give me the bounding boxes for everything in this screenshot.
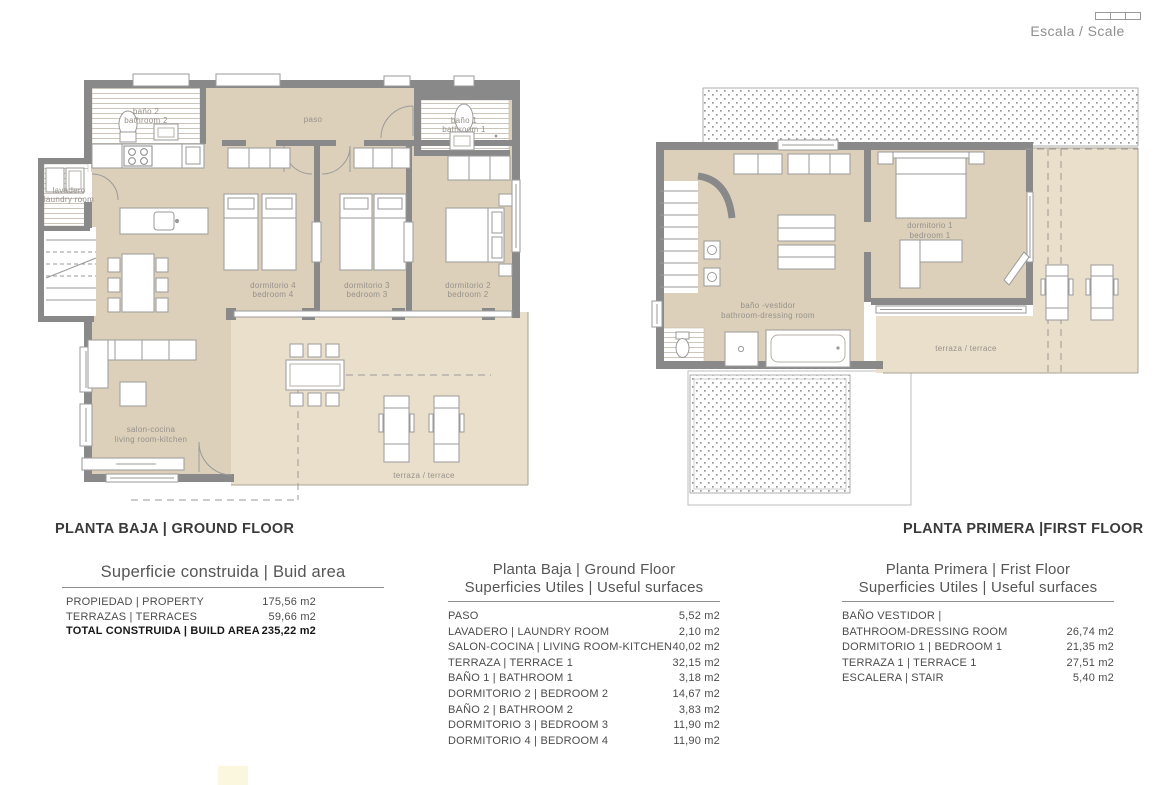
- drawing-sheet: Escala / Scale: [0, 0, 1170, 785]
- table-title: Superficie construida | Buid area: [62, 561, 384, 583]
- row-label: ESCALERA | STAIR: [842, 671, 944, 687]
- shower: [725, 332, 758, 366]
- row-label: BAÑO 1 | BATHROOM 1: [448, 671, 573, 687]
- table-row: TERRAZA | TERRACE 1 32,15 m2: [448, 656, 720, 672]
- first-floor-plan: baño -vestidor bathroom-dressing room do…: [646, 76, 1146, 521]
- row-label: TOTAL CONSTRUIDA | BUILD AREA: [66, 624, 260, 639]
- room-label-dorm1: bedroom 1: [910, 231, 951, 240]
- table-row: TERRAZAS | TERRACES 59,66 m2: [66, 610, 316, 625]
- row-value: 26,74 m2: [1067, 625, 1114, 641]
- room-label-bano2: bathroom 2: [124, 116, 168, 125]
- kitchen-island: [120, 208, 208, 234]
- room-label-dorm4: dormitorio 4: [250, 281, 296, 290]
- row-label: PASO: [448, 609, 479, 625]
- row-value: 3,83 m2: [679, 703, 720, 719]
- room-label-dorm3: dormitorio 3: [344, 281, 390, 290]
- row-value: 11,90 m2: [673, 718, 720, 734]
- ground-floor-plan: baño 2 bathroom 2 lavadero laundry room …: [36, 72, 536, 522]
- bathtub: [766, 330, 850, 367]
- row-label: DORMITORIO 2 | BEDROOM 2: [448, 687, 608, 703]
- dining-table: [108, 254, 168, 312]
- table-row: BAÑO VESTIDOR |: [842, 609, 1114, 625]
- row-label: DORMITORIO 4 | BEDROOM 4: [448, 734, 608, 750]
- row-value: 21,35 m2: [1067, 640, 1114, 656]
- room-label-dorm2: dormitorio 2: [445, 281, 491, 290]
- room-label-bano1: baño 1: [451, 116, 478, 125]
- room-label-terraza: terraza / terrace: [393, 471, 455, 480]
- table-title: Planta Primera | Frist Floor: [842, 561, 1114, 579]
- scale-bar-segment: [1111, 13, 1126, 19]
- table-row: PASO 5,52 m2: [448, 609, 720, 625]
- table-row: BAÑO 2 | BATHROOM 2 3,83 m2: [448, 703, 720, 719]
- row-value: 235,22 m2: [262, 624, 316, 639]
- row-label: BATHROOM-DRESSING ROOM: [842, 625, 1008, 641]
- row-value: 32,15 m2: [673, 656, 720, 672]
- ground-floor-title: PLANTA BAJA | GROUND FLOOR: [55, 521, 294, 537]
- row-label: PROPIEDAD | PROPERTY: [66, 595, 204, 610]
- table-row: DORMITORIO 1 | BEDROOM 1 21,35 m2: [842, 640, 1114, 656]
- room-label-bano-vestidor: bathroom-dressing room: [721, 311, 815, 320]
- room-label-bano2: baño 2: [133, 107, 160, 116]
- room-label-salon: salon-cocina: [127, 425, 176, 434]
- row-value: 5,40 m2: [1073, 671, 1114, 687]
- table-row: ESCALERA | STAIR 5,40 m2: [842, 671, 1114, 687]
- row-label: TERRAZA | TERRACE 1: [448, 656, 573, 672]
- room-label-terraza: terraza / terrace: [935, 344, 997, 353]
- row-value: 5,52 m2: [679, 609, 720, 625]
- terrace-dining-set: [286, 344, 344, 406]
- table-row-total: TOTAL CONSTRUIDA | BUILD AREA 235,22 m2: [66, 624, 316, 639]
- table-row: LAVADERO | LAUNDRY ROOM 2,10 m2: [448, 625, 720, 641]
- row-label: TERRAZAS | TERRACES: [66, 610, 197, 625]
- row-label: TERRAZA 1 | TERRACE 1: [842, 656, 977, 672]
- table-row: SALON-COCINA | LIVING ROOM-KITCHEN 40,02…: [448, 640, 720, 656]
- scale-bar-segment: [1126, 13, 1140, 19]
- room-label-bano-vestidor: baño -vestidor: [741, 301, 796, 310]
- table-title: Planta Baja | Ground Floor: [448, 561, 720, 579]
- table-row: TERRAZA 1 | TERRACE 1 27,51 m2: [842, 656, 1114, 672]
- table-row: DORMITORIO 4 | BEDROOM 4 11,90 m2: [448, 734, 720, 750]
- built-area-table: Superficie construida | Buid area PROPIE…: [62, 561, 384, 639]
- row-label: BAÑO VESTIDOR |: [842, 609, 941, 625]
- row-value: 175,56 m2: [262, 595, 316, 610]
- row-value: 27,51 m2: [1067, 656, 1114, 672]
- table-subtitle: Superficies Utiles | Useful surfaces: [842, 579, 1114, 597]
- divider: [448, 601, 720, 602]
- scale-bar-segment: [1096, 13, 1111, 19]
- row-value: 11,90 m2: [673, 734, 720, 750]
- row-value: 14,67 m2: [673, 687, 720, 703]
- row-value: 40,02 m2: [673, 640, 720, 656]
- room-label-lavadero: laundry room: [44, 195, 94, 204]
- row-label: DORMITORIO 1 | BEDROOM 1: [842, 640, 1002, 656]
- row-label: SALON-COCINA | LIVING ROOM-KITCHEN: [448, 640, 672, 656]
- room-label-dorm1: dormitorio 1: [907, 221, 953, 230]
- kitchen-counter: [92, 144, 204, 168]
- row-label: BAÑO 2 | BATHROOM 2: [448, 703, 573, 719]
- first-surfaces-table: Planta Primera | Frist Floor Superficies…: [842, 561, 1114, 687]
- row-value: 3,18 m2: [679, 671, 720, 687]
- ground-surfaces-table: Planta Baja | Ground Floor Superficies U…: [448, 561, 720, 749]
- table-row: PROPIEDAD | PROPERTY 175,56 m2: [66, 595, 316, 610]
- divider: [842, 601, 1114, 602]
- table-row: DORMITORIO 3 | BEDROOM 3 11,90 m2: [448, 718, 720, 734]
- row-label: DORMITORIO 3 | BEDROOM 3: [448, 718, 608, 734]
- table-row: DORMITORIO 2 | BEDROOM 2 14,67 m2: [448, 687, 720, 703]
- row-value: 2,10 m2: [679, 625, 720, 641]
- room-label-paso: paso: [304, 115, 323, 124]
- table-row: BATHROOM-DRESSING ROOM 26,74 m2: [842, 625, 1114, 641]
- table-row: BAÑO 1 | BATHROOM 1 3,18 m2: [448, 671, 720, 687]
- room-label-salon: living room-kitchen: [115, 435, 187, 444]
- scale-label: Escala / Scale: [1015, 23, 1140, 39]
- toilet: [676, 332, 689, 358]
- table-subtitle: Superficies Utiles | Useful surfaces: [448, 579, 720, 597]
- room-label-dorm3: bedroom 3: [347, 290, 388, 299]
- room-label-dorm4: bedroom 4: [253, 290, 294, 299]
- room-label-dorm2: bedroom 2: [448, 290, 489, 299]
- first-floor-title: PLANTA PRIMERA |FIRST FLOOR: [903, 521, 1143, 537]
- row-value: 59,66 m2: [269, 610, 316, 625]
- room-label-bano1: bathroom 1: [442, 125, 486, 134]
- scale-bar: [1095, 12, 1141, 20]
- room-label-lavadero: lavadero: [52, 186, 85, 195]
- divider: [62, 587, 384, 588]
- watermark-smudge: [218, 766, 248, 785]
- bedroom2-furniture: [446, 156, 512, 276]
- row-label: LAVADERO | LAUNDRY ROOM: [448, 625, 609, 641]
